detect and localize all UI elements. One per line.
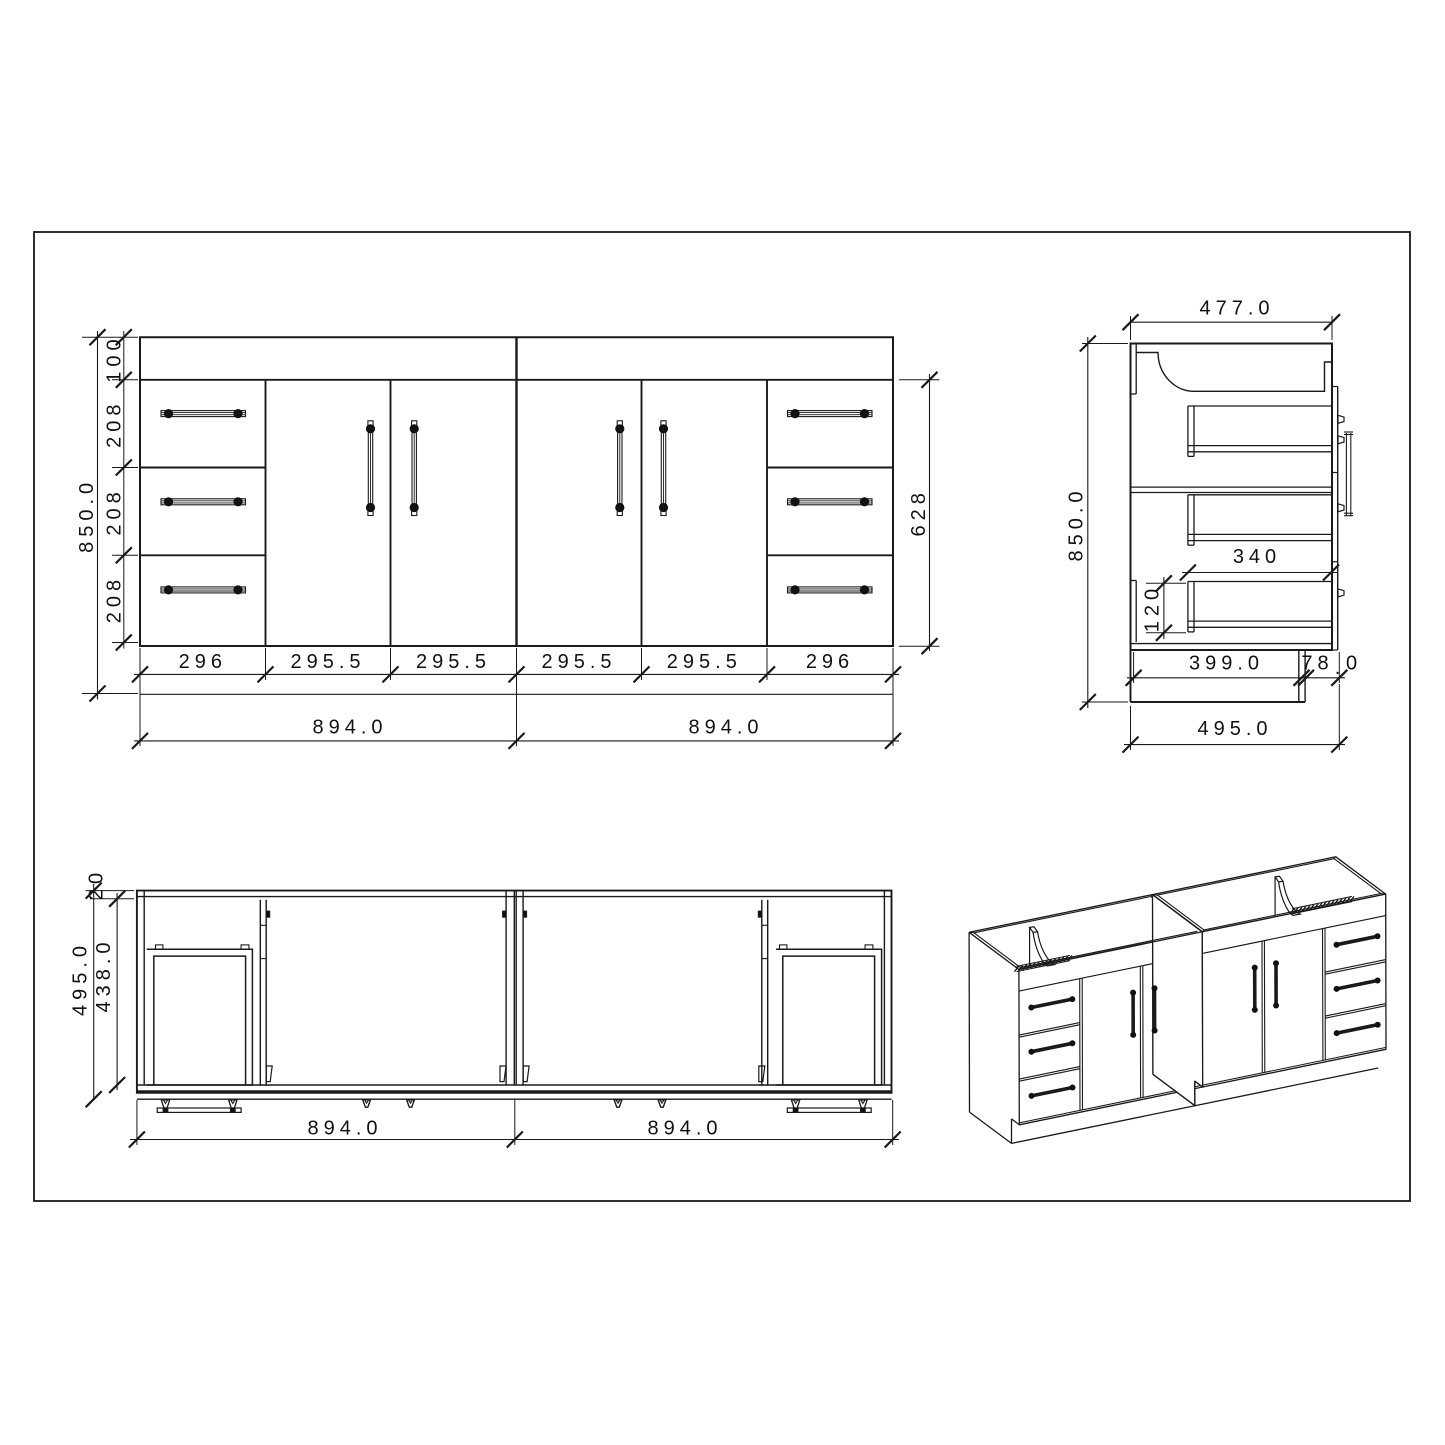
svg-text:399.0: 399.0: [1189, 653, 1264, 675]
svg-text:.: .: [1335, 657, 1346, 679]
svg-text:296: 296: [179, 651, 227, 673]
svg-text:208: 208: [104, 487, 126, 535]
svg-text:894.0: 894.0: [647, 1118, 722, 1140]
svg-text:894.0: 894.0: [307, 1118, 382, 1140]
svg-text:208: 208: [104, 400, 126, 448]
svg-text:78: 78: [1301, 653, 1333, 675]
svg-text:477.0: 477.0: [1199, 298, 1274, 320]
svg-text:295.5: 295.5: [290, 651, 365, 673]
svg-text:438.0: 438.0: [93, 937, 115, 1012]
svg-text:20: 20: [86, 868, 108, 900]
svg-text:495.0: 495.0: [70, 941, 92, 1016]
svg-text:295.5: 295.5: [541, 651, 616, 673]
svg-text:120: 120: [1142, 584, 1164, 632]
svg-text:894.0: 894.0: [312, 717, 387, 739]
svg-text:296: 296: [806, 651, 854, 673]
svg-text:850.0: 850.0: [1066, 486, 1088, 561]
svg-text:850.0: 850.0: [76, 478, 98, 553]
svg-text:100: 100: [104, 334, 126, 382]
svg-text:208: 208: [104, 575, 126, 623]
svg-text:295.5: 295.5: [416, 651, 491, 673]
svg-text:340: 340: [1233, 546, 1281, 568]
svg-text:894.0: 894.0: [688, 717, 763, 739]
svg-text:295.5: 295.5: [667, 651, 742, 673]
svg-text:628: 628: [908, 488, 930, 536]
svg-text:495.0: 495.0: [1197, 718, 1272, 740]
svg-text:0: 0: [1346, 653, 1362, 675]
